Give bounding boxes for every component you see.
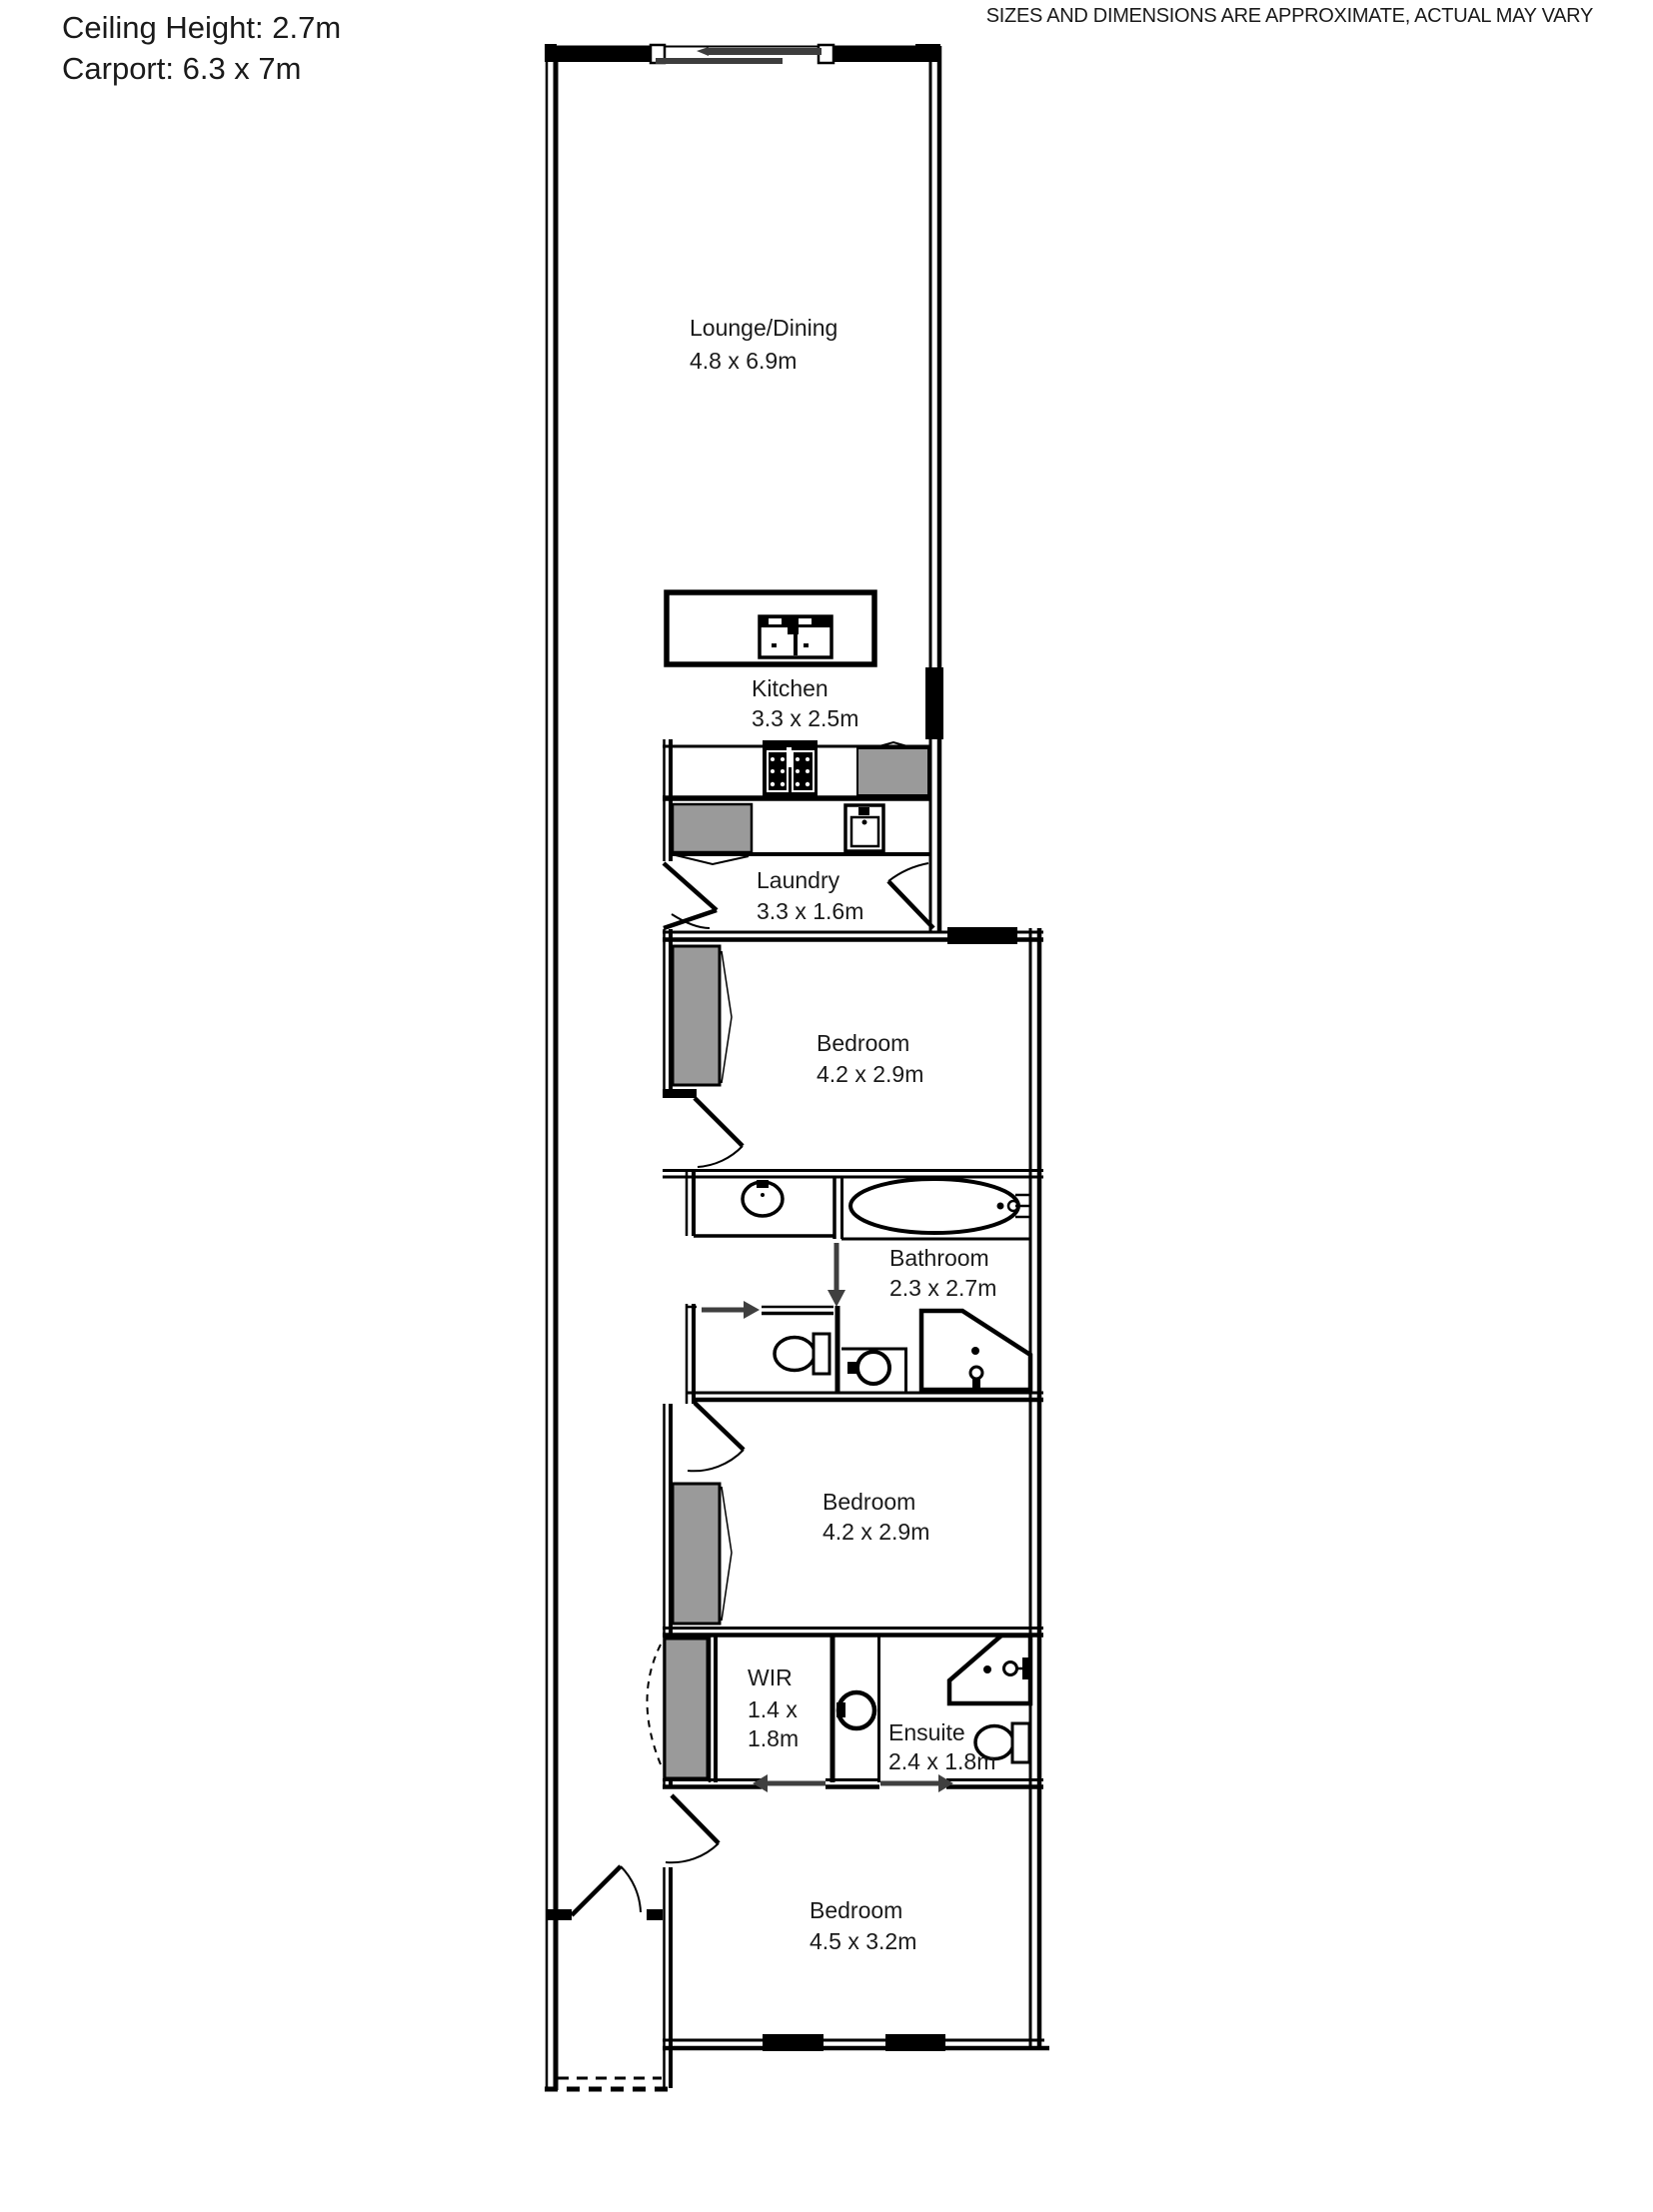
hall-vanity2-basin-icon [847, 1352, 889, 1384]
wc-entry-arrow-icon [702, 1301, 760, 1319]
ensuite-vanity-basin-icon [836, 1692, 874, 1728]
label-bedroom2-dims: 4.2 x 2.9m [823, 1519, 929, 1545]
ensuite-shower-icon [949, 1636, 1031, 1703]
label-wir: WIR [748, 1664, 793, 1690]
label-bathroom: Bathroom [889, 1245, 989, 1271]
floorplan-svg: Ceiling Height: 2.7m Carport: 6.3 x 7m S… [0, 0, 1653, 2207]
bedroom1-robe [673, 946, 720, 1085]
bedroom2-door-icon [688, 1403, 744, 1471]
laundry-right-door-icon [888, 863, 933, 928]
laundry-sink-icon [845, 805, 883, 851]
label-kitchen: Kitchen [752, 675, 828, 701]
label-lounge-dims: 4.8 x 6.9m [690, 348, 797, 374]
bathroom-entry-arrow-icon [827, 1243, 845, 1307]
fridge-space [857, 748, 928, 795]
window-bed1 [947, 927, 1017, 944]
wir-entry-arrow-icon [753, 1774, 826, 1792]
laundry-bifold-lines [676, 855, 749, 864]
bedroom3-door-icon [666, 1795, 719, 1862]
label-laundry-dims: 3.3 x 1.6m [757, 898, 863, 924]
laundry-bench [673, 804, 752, 852]
front-entry-door-icon [572, 1866, 641, 1915]
label-ensuite: Ensuite [888, 1719, 965, 1745]
window-bed3-right [885, 2034, 945, 2051]
ceiling-height-note: Ceiling Height: 2.7m [62, 10, 341, 45]
top-right-corner-wall [915, 44, 940, 62]
bedroom1-door-icon [695, 1098, 743, 1167]
wc-toilet-icon [775, 1334, 829, 1374]
vanity-basin-icon [743, 1180, 783, 1216]
island-sink-icon [760, 616, 831, 657]
window-bed3-left [763, 2034, 824, 2051]
sliding-door-icon [656, 47, 822, 64]
window-lounge-right [832, 47, 916, 62]
bedroom2-robe [673, 1484, 720, 1624]
label-bedroom1: Bedroom [817, 1030, 909, 1056]
label-bedroom2: Bedroom [823, 1489, 915, 1515]
circulation-arrows [702, 1243, 953, 1792]
bathtub-icon [850, 1179, 1029, 1233]
label-lounge: Lounge/Dining [690, 315, 837, 341]
label-ensuite-dims: 2.4 x 1.8m [888, 1748, 995, 1774]
window-lounge-left [553, 47, 652, 62]
wall-solid-segment [925, 667, 943, 739]
label-wir-dims1: 1.4 x [748, 1696, 798, 1722]
robe1-door-lines [722, 951, 732, 1083]
floorplan-page: Ceiling Height: 2.7m Carport: 6.3 x 7m S… [0, 0, 1653, 2207]
linen-robe-door-dashed-arc [648, 1645, 662, 1764]
porch-dashed-edge [545, 2078, 675, 2089]
carport-note: Carport: 6.3 x 7m [62, 51, 301, 86]
robe2-door-lines [722, 1487, 732, 1621]
ensuite-entry-arrow-icon [880, 1774, 953, 1792]
fixtures [665, 592, 1031, 1778]
label-kitchen-dims: 3.3 x 2.5m [752, 705, 858, 731]
label-bedroom1-dims: 4.2 x 2.9m [817, 1061, 923, 1087]
cooktop-icon [763, 740, 818, 796]
label-laundry: Laundry [757, 867, 840, 893]
label-bedroom3: Bedroom [810, 1897, 902, 1923]
hall-linen-robe [665, 1639, 708, 1778]
label-bedroom3-dims: 4.5 x 3.2m [810, 1928, 916, 1954]
disclaimer-note: SIZES AND DIMENSIONS ARE APPROXIMATE, AC… [986, 5, 1593, 27]
laundry-hall-door-icon [664, 863, 717, 928]
label-wir-dims2: 1.8m [748, 1725, 799, 1751]
bathroom-shower-icon [921, 1311, 1030, 1390]
label-bathroom-dims: 2.3 x 2.7m [889, 1275, 996, 1301]
